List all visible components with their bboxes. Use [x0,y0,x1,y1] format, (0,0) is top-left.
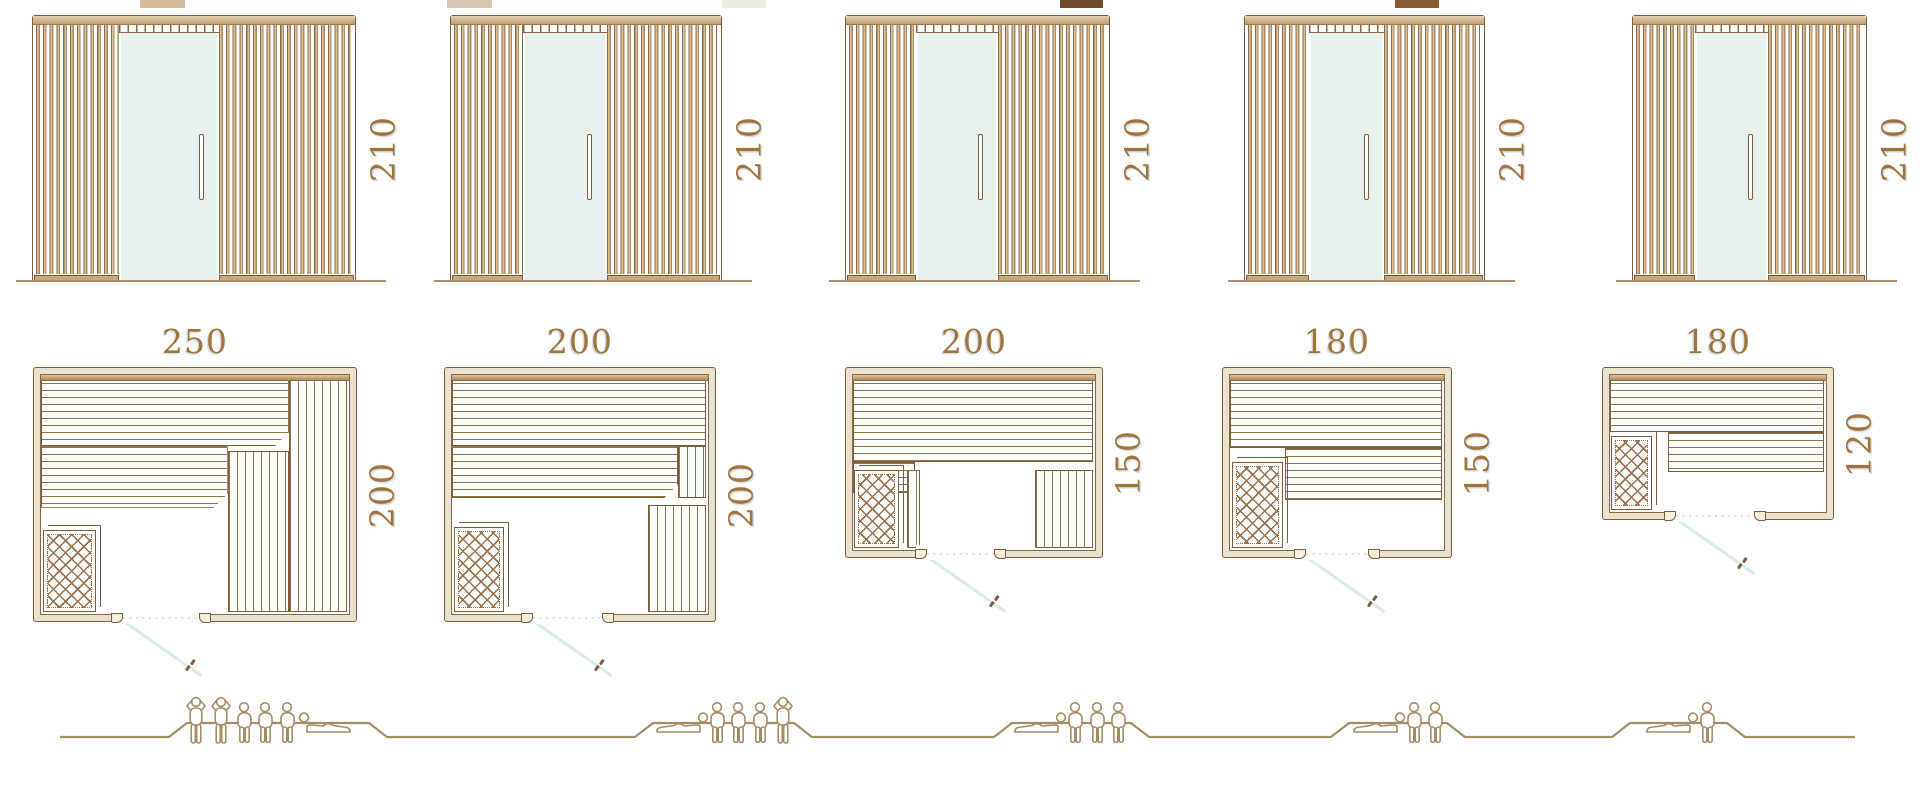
wood-swatch [722,0,766,8]
sauna-floor-plan [845,367,1103,558]
door-closed-dotted-line [1676,515,1755,517]
door-transom [523,25,607,33]
heater-icon [1232,462,1283,549]
sauna-size-diagram: 2102502002102002002102001502101801502101… [0,0,1920,789]
door-swing-handle-icon [190,659,196,665]
door-swing-line [122,619,203,677]
sauna-floor-plan [1222,367,1452,558]
door-swing-line [1304,555,1385,613]
door-swing-handle-icon [994,595,1000,601]
wood-slat-panel-right [998,25,1105,274]
sauna-elevation [1632,15,1867,282]
door-handle-icon [1364,134,1369,200]
door-opening [1295,545,1380,560]
plan-interior [852,374,1096,551]
sauna-elevation [1244,15,1485,282]
door-jamb-left [915,549,927,559]
door-opening [916,545,1005,560]
door-swing-line [531,619,612,677]
door-transom [916,25,998,33]
plan-backrest-band [41,375,349,381]
bench-horizontal [1230,375,1442,448]
door-swing-handle-icon [1742,557,1748,563]
capacity-figure-standing [770,696,796,744]
door-handle-icon [199,134,204,200]
capacity-figure-sitting [233,702,256,743]
door-jamb-right [994,549,1006,559]
sauna-floor-plan [1602,367,1834,520]
elevation-ground-line [1616,280,1897,282]
glass-door [916,33,998,280]
capacity-figure-reclining [654,710,710,737]
sauna-floor-plan [33,367,357,622]
dimension-width-label: 200 [444,322,716,362]
dimension-height-label: 210 [1491,93,1533,205]
dimension-depth-label: 150 [1456,407,1498,519]
bench-horizontal [1610,375,1824,432]
dimension-width-label: 180 [1602,322,1834,362]
bench-horizontal [41,375,289,446]
heater-lattice [458,531,501,608]
bench-horizontal [452,375,706,446]
bench-vertical [289,375,347,612]
heater-lattice [47,534,93,608]
wood-swatch [1060,0,1103,8]
dimension-depth-label: 200 [361,439,403,551]
door-jamb-right [602,613,614,623]
bench-vertical [907,470,920,548]
capacity-figure-sitting [254,702,277,743]
capacity-figure-sitting [706,702,729,743]
door-opening [112,609,210,624]
capacity-figure-sitting [1064,702,1087,743]
door-jamb-right [199,613,211,623]
wood-slat-panel-right [1384,25,1480,274]
capacity-figure-sitting [1086,702,1109,743]
sauna-floor-plan [444,367,716,622]
elevation-top-beam [1245,16,1484,25]
door-closed-dotted-line [927,553,994,555]
dimension-depth-label: 150 [1107,407,1149,519]
capacity-figure-reclining [1644,710,1700,737]
heater-lattice [1615,440,1648,506]
bench-vertical [1035,470,1093,548]
door-jamb-left [1294,549,1306,559]
door-swing-handle-icon [1372,595,1378,601]
capacity-figure-sitting [1696,702,1719,743]
capacity-figure-reclining [1012,710,1068,737]
capacity-figure-sitting [727,702,750,743]
door-swing-line [926,555,1007,613]
wood-slat-panel-left [1636,25,1695,274]
door-closed-dotted-line [123,617,199,619]
wood-slat-panel-right [219,25,351,274]
capacity-figure-sitting [1107,702,1130,743]
door-jamb-right [1754,511,1766,521]
door-swing-line [1674,517,1755,575]
bench-horizontal [452,446,678,498]
wood-slat-panel-left [454,25,523,274]
bench-vertical [228,451,289,612]
dimension-height-label: 210 [728,93,770,205]
dimension-depth-label: 200 [720,439,762,551]
heater-icon [454,527,505,612]
elevation-ground-line [829,280,1140,282]
glass-door [1309,33,1384,280]
elevation-top-beam [33,16,355,25]
door-transom [1695,25,1768,33]
wood-slat-panel-left [849,25,916,274]
glass-door [1695,33,1768,280]
capacity-figure-standing [208,696,234,744]
door-closed-dotted-line [1306,553,1369,555]
door-transom [119,25,219,33]
door-transom [1309,25,1384,33]
sauna-elevation [32,15,356,282]
wood-slat-panel-left [1248,25,1309,274]
elevation-ground-line [16,280,386,282]
capacity-figure-reclining [1351,710,1407,737]
heater-icon [43,530,97,612]
door-jamb-left [1664,511,1676,521]
plan-backrest-band [1610,375,1826,381]
elevation-ground-line [1228,280,1515,282]
capacity-figure-sitting [749,702,772,743]
dimension-width-label: 200 [845,322,1103,362]
wood-swatch [1395,0,1439,8]
bench-horizontal [41,446,228,508]
door-opening [522,609,613,624]
plan-backrest-band [1230,375,1444,381]
bench-vertical [648,505,706,612]
elevation-ground-line [434,280,752,282]
bench-horizontal [1285,448,1442,500]
door-jamb-left [521,613,533,623]
heater-icon [1611,436,1652,510]
door-jamb-right [1368,549,1380,559]
door-opening [1665,507,1766,522]
dimension-width-label: 250 [33,322,357,362]
plan-backrest-band [853,375,1095,381]
wood-swatch [140,0,185,8]
door-handle-icon [978,134,983,200]
plan-interior [1229,374,1445,551]
sauna-elevation [450,15,722,282]
sauna-elevation [845,15,1110,282]
capacity-figure-sitting [1424,702,1447,743]
heater-lattice [858,474,894,544]
bench-horizontal [1668,432,1824,473]
elevation-top-beam [451,16,721,25]
wood-slat-panel-right [607,25,717,274]
door-jamb-left [111,613,123,623]
plan-interior [40,374,350,615]
heater-icon [854,470,898,548]
dimension-height-label: 210 [362,93,404,205]
plan-interior [1609,374,1827,513]
capacity-figure-sitting [1403,702,1426,743]
bench-vertical [678,446,706,498]
capacity-figure-standing [183,696,209,744]
door-swing-handle-icon [599,659,605,665]
door-closed-dotted-line [533,617,602,619]
glass-door [523,33,607,280]
door-handle-icon [1748,134,1753,200]
capacity-figure-sitting [276,702,299,743]
bench-horizontal [853,375,1093,462]
heater-lattice [1236,466,1279,545]
dimension-height-label: 210 [1873,93,1915,205]
glass-door [119,33,219,280]
wood-swatch [447,0,492,8]
door-handle-icon [587,134,592,200]
elevation-top-beam [846,16,1109,25]
elevation-top-beam [1633,16,1866,25]
dimension-height-label: 210 [1116,93,1158,205]
plan-interior [451,374,709,615]
dimension-depth-label: 120 [1838,388,1880,500]
dimension-width-label: 180 [1222,322,1452,362]
wood-slat-panel-left [36,25,119,274]
wood-slat-panel-right [1768,25,1862,274]
plan-backrest-band [452,375,708,381]
capacity-figure-reclining [297,710,353,737]
